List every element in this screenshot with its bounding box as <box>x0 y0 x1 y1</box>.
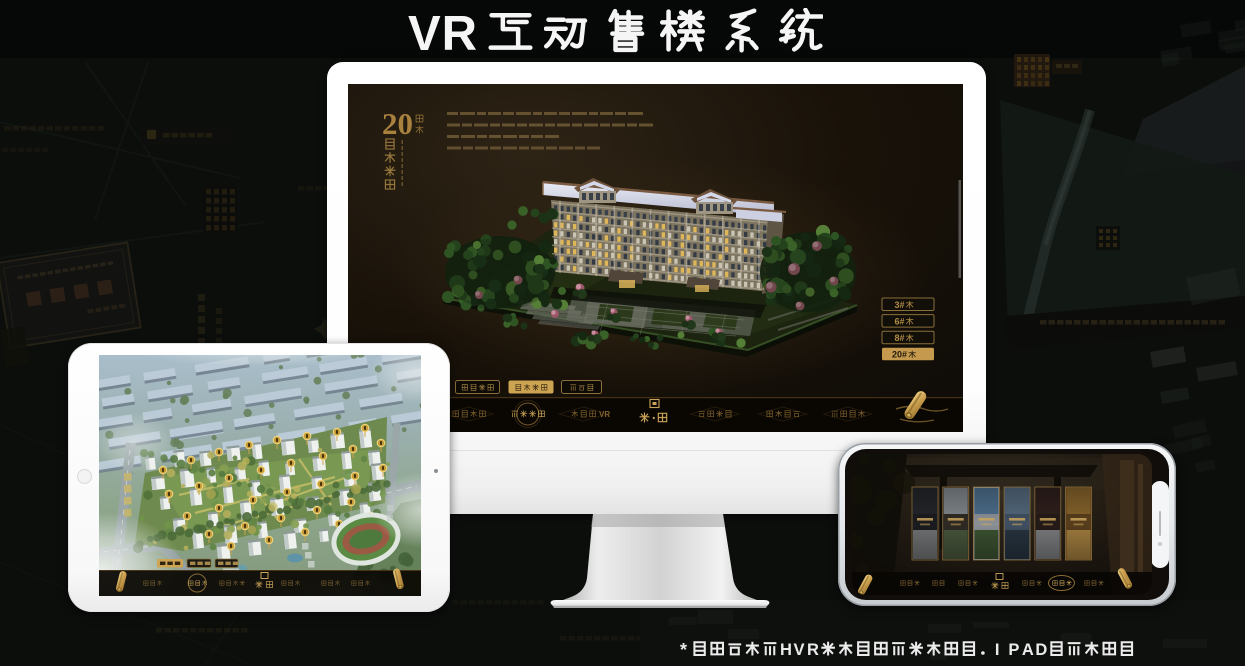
svg-text:V: V <box>794 641 805 659</box>
svg-text:VR: VR <box>408 7 478 61</box>
svg-text:H: H <box>780 641 792 659</box>
svg-text:A: A <box>1022 641 1034 659</box>
svg-text:D: D <box>1035 641 1047 659</box>
svg-text:20#: 20# <box>892 350 907 360</box>
svg-text:I: I <box>995 641 1000 659</box>
svg-text:*: * <box>680 640 687 660</box>
svg-text:R: R <box>807 641 819 659</box>
svg-text:3#: 3# <box>895 300 905 310</box>
svg-text:VR: VR <box>599 410 610 419</box>
svg-text:P: P <box>1008 641 1019 659</box>
svg-text:6#: 6# <box>895 316 905 326</box>
svg-text:8#: 8# <box>895 333 905 343</box>
svg-text:20: 20 <box>382 106 413 141</box>
